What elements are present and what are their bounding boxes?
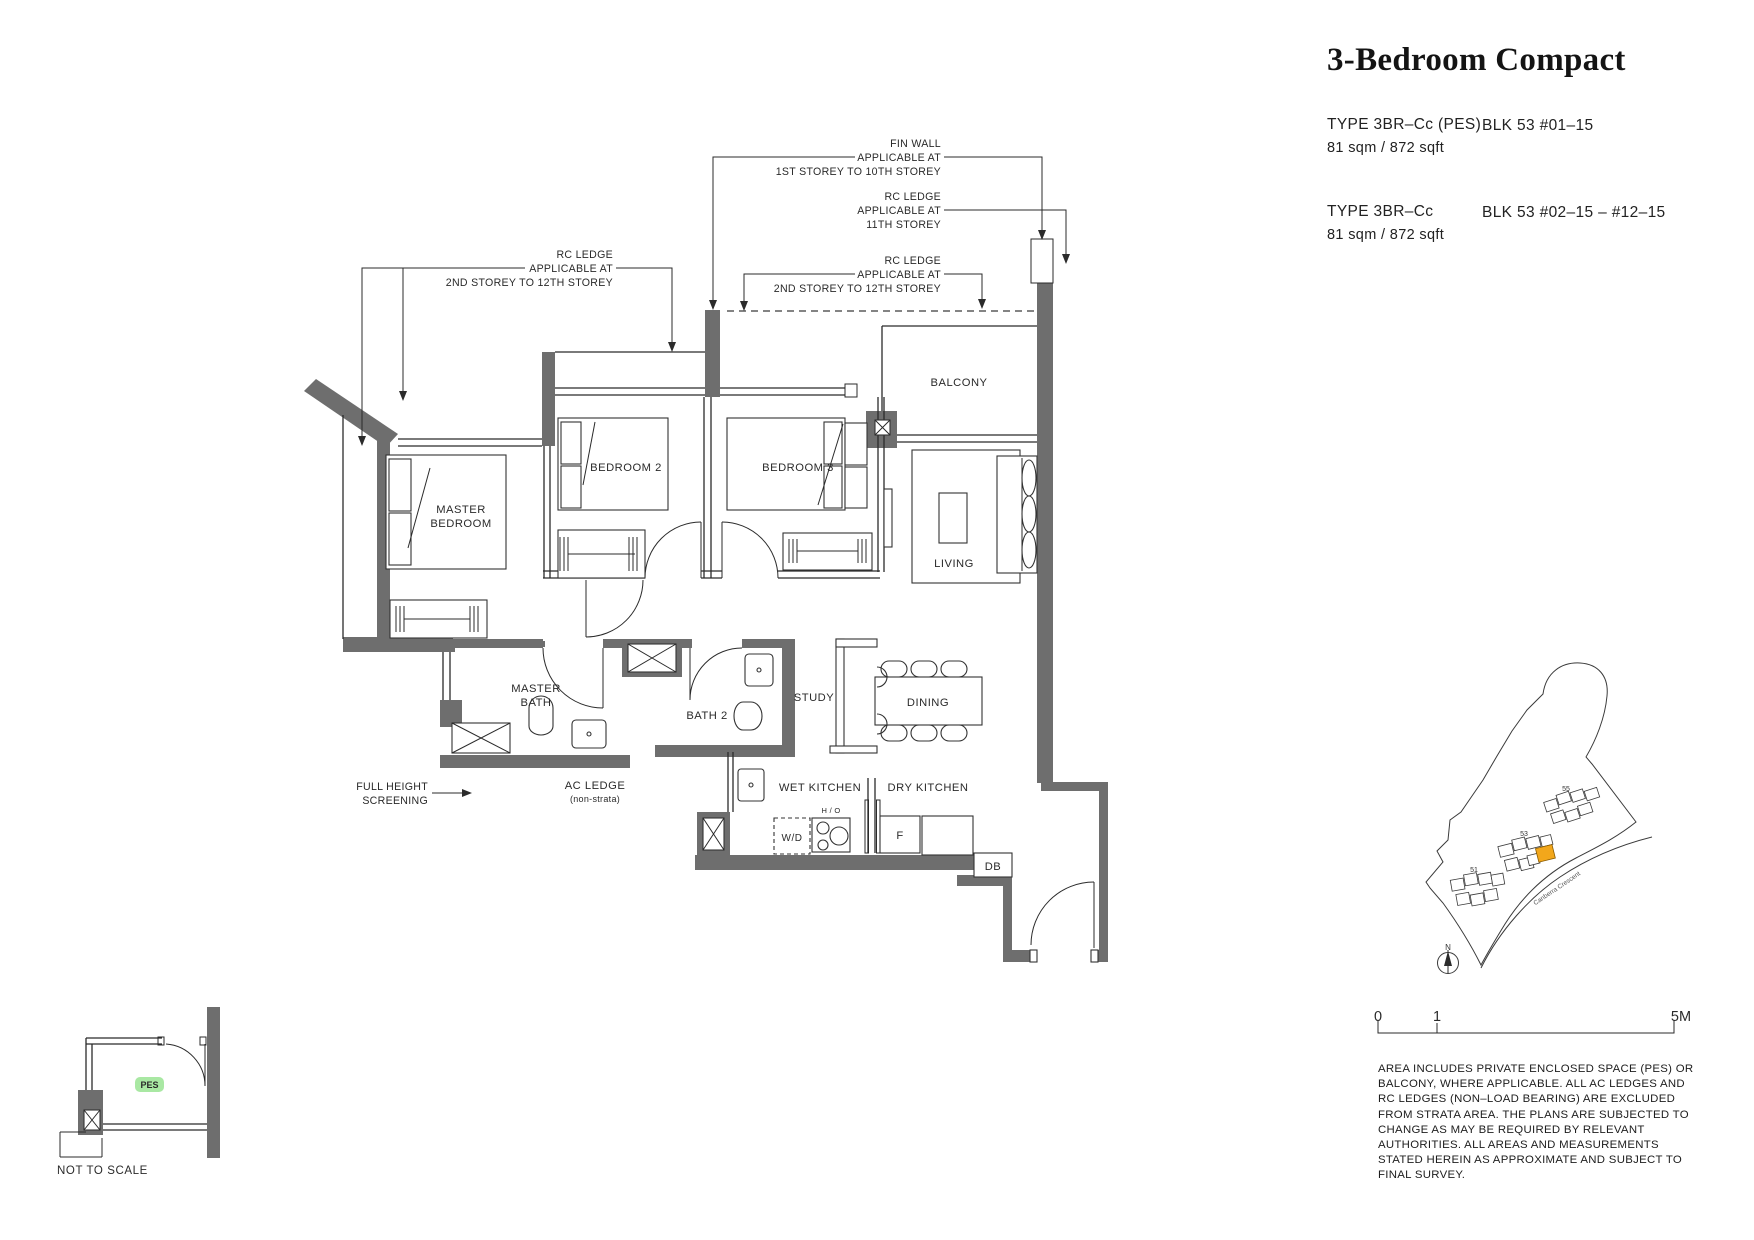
floorplan-page: 3-Bedroom Compact TYPE 3BR–Cc (PES) BLK … (0, 0, 1754, 1240)
scale-bar: 0 1 5M (1374, 1009, 1691, 1033)
ann-rc-left-1: RC LEDGE (556, 249, 613, 261)
label-master-bath: MASTER (511, 683, 561, 695)
site-block-55 (1543, 783, 1604, 828)
ann-fin-wall-2: APPLICABLE AT (857, 152, 941, 164)
north-label: N (1445, 943, 1451, 952)
ann-rc11-2: APPLICABLE AT (857, 205, 941, 217)
label-ac-ledge: AC LEDGE (565, 780, 626, 792)
pes-label: PES (140, 1080, 158, 1090)
floor-plan-drawing: MASTER BEDROOM BEDROOM 2 BEDROOM 3 BALCO… (0, 0, 1754, 1240)
ann-fin-wall-1: FIN WALL (890, 138, 941, 150)
scale-five-m: 5M (1671, 1009, 1691, 1025)
label-master-bedroom: MASTER (436, 504, 486, 516)
label-wet-kitchen: WET KITCHEN (779, 782, 861, 794)
ann-rc-left-2: APPLICABLE AT (529, 263, 613, 275)
scale-zero: 0 (1374, 1009, 1382, 1025)
label-master-bedroom-2: BEDROOM (430, 518, 491, 530)
site-boundary (1426, 663, 1636, 965)
label-db: DB (985, 861, 1002, 873)
label-ac-ledge-note: (non-strata) (570, 794, 620, 804)
label-hob: H / O (821, 806, 840, 815)
label-bedroom-3: BEDROOM 3 (762, 462, 834, 474)
label-fridge: F (896, 830, 903, 842)
label-bath-2: BATH 2 (686, 710, 727, 722)
site-block-53-label: 53 (1520, 831, 1528, 838)
north-compass-icon: N (1438, 943, 1459, 974)
label-dry-kitchen: DRY KITCHEN (888, 782, 969, 794)
label-bedroom-2: BEDROOM 2 (590, 462, 662, 474)
bath2-fixtures (734, 654, 773, 730)
site-block-51-label: 51 (1470, 867, 1478, 874)
label-study: STUDY (794, 692, 834, 704)
site-map: 55 53 51 Canberra Crescent (1426, 663, 1652, 974)
ann-fin-wall-3: 1ST STOREY TO 10TH STOREY (776, 166, 941, 178)
label-master-bath-2: BATH (520, 697, 551, 709)
label-balcony: BALCONY (931, 377, 988, 389)
scale-one: 1 (1433, 1009, 1441, 1025)
ann-rc-right-1: RC LEDGE (884, 255, 941, 267)
label-washer-dryer: W/D (782, 833, 803, 844)
site-block-51 (1450, 868, 1508, 909)
site-road (1481, 837, 1652, 968)
ann-screening-1: FULL HEIGHT (356, 781, 428, 793)
road-name-label: Canberra Crescent (1532, 870, 1582, 907)
ann-rc11-1: RC LEDGE (884, 191, 941, 203)
bedroom3-wardrobe (783, 533, 872, 570)
label-dining: DINING (907, 697, 949, 709)
label-living: LIVING (934, 558, 974, 570)
ann-rc-right-3: 2ND STOREY TO 12TH STOREY (774, 283, 941, 295)
ann-rc11-3: 11TH STOREY (866, 219, 941, 231)
ann-rc-left-3: 2ND STOREY TO 12TH STOREY (446, 277, 613, 289)
ann-rc-right-2: APPLICABLE AT (857, 269, 941, 281)
site-block-55-label: 55 (1562, 786, 1570, 793)
bedroom2-wardrobe (558, 530, 645, 578)
ann-screening-2: SCREENING (362, 795, 428, 807)
not-to-scale-label: NOT TO SCALE (57, 1165, 148, 1177)
pes-inset: PES NOT TO SCALE (57, 1007, 220, 1177)
pes-badge: PES (135, 1077, 164, 1092)
master-bedroom-wardrobe (390, 600, 487, 638)
